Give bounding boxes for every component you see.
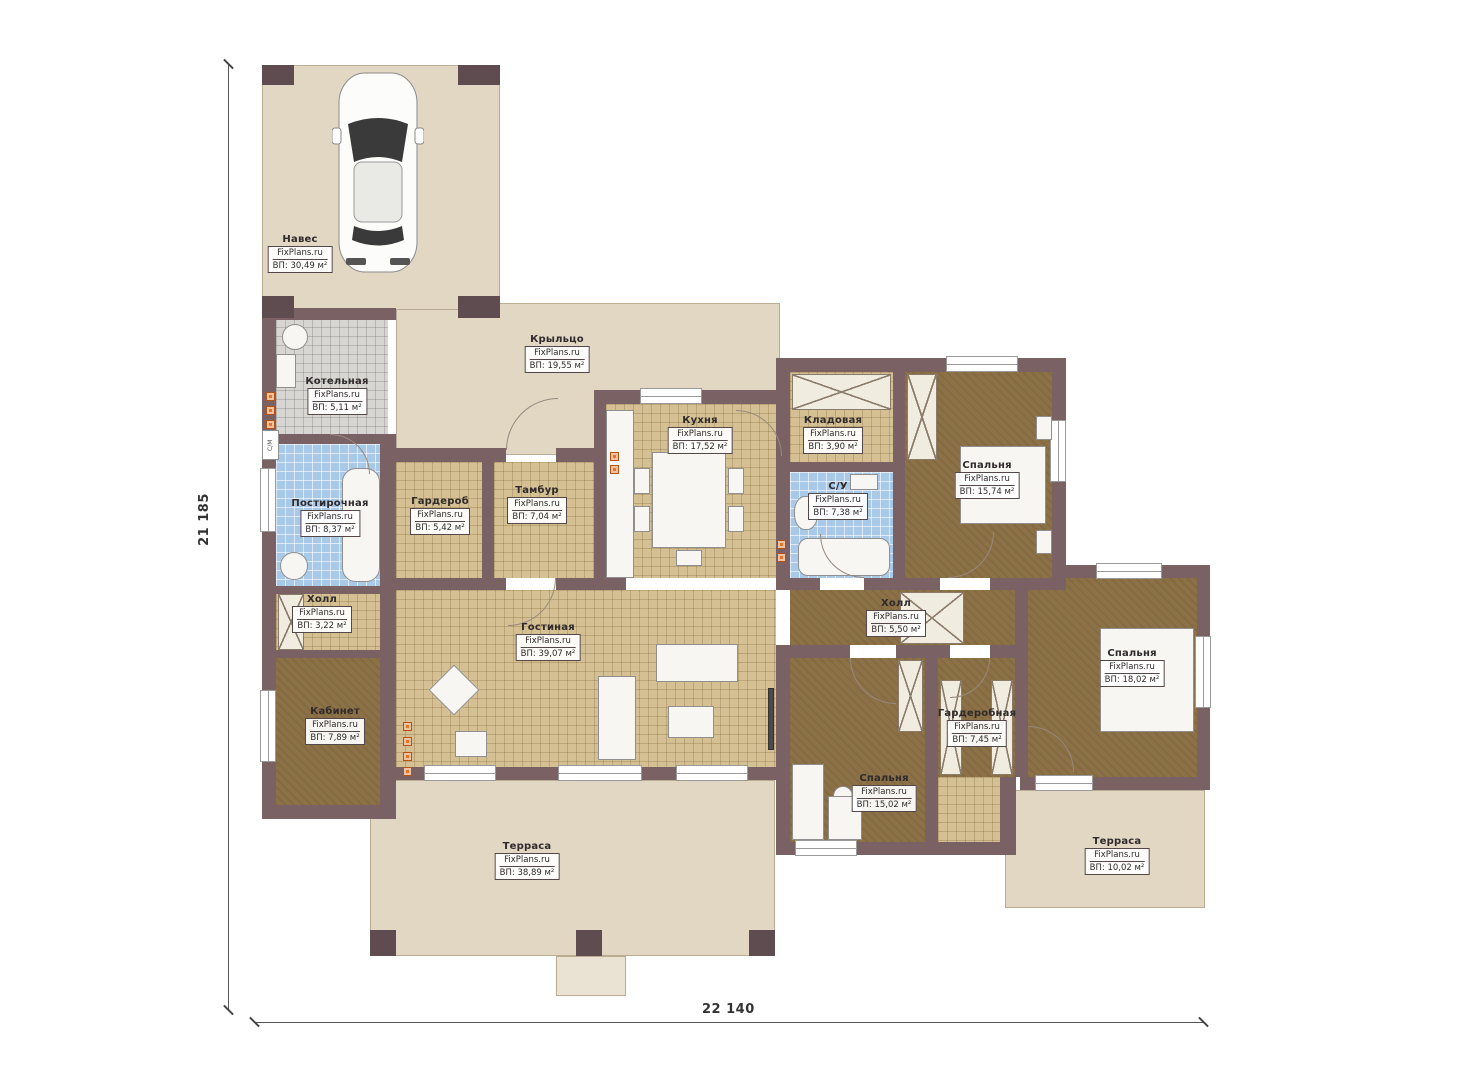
room-label-kotelnaya: КотельнаяFixPlans.ruВП: 5,11 м²	[305, 376, 368, 415]
room-name: Терраса	[1085, 836, 1150, 847]
coffee-table	[668, 706, 714, 738]
chair	[728, 468, 744, 494]
radiator-dot	[266, 420, 275, 429]
room-name: Котельная	[305, 376, 368, 387]
radiator-dot	[777, 540, 786, 549]
room-name: Кладовая	[803, 415, 863, 426]
room-name: Гостиная	[516, 622, 581, 633]
room-name: С/У	[808, 481, 868, 492]
room-info-box: FixPlans.ruВП: 30,49 м²	[268, 246, 333, 273]
watermark-text: FixPlans.ru	[813, 494, 863, 507]
wall-segment	[556, 578, 626, 590]
room-area: ВП: 3,22 м²	[297, 620, 347, 632]
window	[795, 840, 857, 856]
room-area: ВП: 17,52 м²	[673, 441, 728, 453]
wall-segment	[384, 578, 506, 590]
room-info-box: FixPlans.ruВП: 5,50 м²	[866, 610, 926, 637]
window	[424, 765, 496, 781]
wall-segment	[556, 448, 606, 462]
room-info-box: FixPlans.ruВП: 3,22 м²	[292, 606, 352, 633]
room-area: ВП: 19,55 м²	[530, 360, 585, 372]
bed	[792, 764, 824, 840]
room-area: ВП: 15,74 м²	[960, 486, 1015, 498]
room-name: Кухня	[668, 415, 733, 426]
room-name: Холл	[292, 594, 352, 605]
room-info-box: FixPlans.ruВП: 10,02 м²	[1085, 848, 1150, 875]
room-name: Спальня	[955, 460, 1020, 471]
radiator-dot	[266, 392, 275, 401]
wall-segment	[276, 586, 380, 594]
wall-segment	[990, 645, 1016, 658]
room-name: Холл	[866, 598, 926, 609]
washing-machine: С/М	[262, 430, 279, 460]
room-area: ВП: 8,37 м²	[305, 524, 355, 536]
room-name: Спальня	[852, 773, 917, 784]
terrace-post	[370, 930, 396, 956]
radiator-dot	[777, 553, 786, 562]
radiator-dot	[403, 767, 412, 776]
wall-pillar	[458, 296, 500, 318]
room-label-spalnya-3: СпальняFixPlans.ruВП: 15,02 м²	[852, 773, 917, 812]
room-label-naves: НавесFixPlans.ruВП: 30,49 м²	[268, 234, 333, 273]
window	[1050, 420, 1066, 482]
wall-pillar	[262, 65, 294, 85]
watermark-text: FixPlans.ru	[305, 511, 355, 524]
room-info-box: FixPlans.ruВП: 18,02 м²	[1100, 660, 1165, 687]
room-info-box: FixPlans.ruВП: 38,89 м²	[495, 853, 560, 880]
room-info-box: FixPlans.ruВП: 7,38 м²	[808, 493, 868, 520]
room-info-box: FixPlans.ruВП: 17,52 м²	[668, 427, 733, 454]
radiator-dot	[266, 406, 275, 415]
window	[1096, 563, 1162, 579]
watermark-text: FixPlans.ru	[530, 347, 585, 360]
room-info-box: FixPlans.ruВП: 3,90 м²	[803, 427, 863, 454]
watermark-text: FixPlans.ru	[310, 719, 360, 732]
room-label-spalnya-1: СпальняFixPlans.ruВП: 15,74 м²	[955, 460, 1020, 499]
room-info-box: FixPlans.ruВП: 7,89 м²	[305, 718, 365, 745]
wall-pillar	[458, 65, 500, 85]
room-area: ВП: 7,45 м²	[952, 734, 1002, 746]
room-label-terrasa-1: ТеррасаFixPlans.ruВП: 38,89 м²	[495, 841, 560, 880]
room-info-box: FixPlans.ruВП: 15,74 м²	[955, 472, 1020, 499]
floor-plan: С/М 21 185 22 140 НавесFixPlans.ruВП: 30…	[0, 0, 1474, 1080]
room-info-box: FixPlans.ruВП: 7,45 м²	[947, 720, 1007, 747]
wall-segment	[380, 434, 396, 819]
room-area: ВП: 38,89 м²	[500, 867, 555, 879]
room-info-box: FixPlans.ruВП: 39,07 м²	[516, 634, 581, 661]
window	[260, 690, 276, 762]
radiator-dot	[403, 752, 412, 761]
watermark-text: FixPlans.ru	[512, 498, 562, 511]
room-label-terrasa-2: ТеррасаFixPlans.ruВП: 10,02 м²	[1085, 836, 1150, 875]
wall-segment	[776, 358, 1066, 372]
sofa	[598, 676, 636, 760]
wall-segment	[384, 448, 506, 462]
tv	[768, 688, 774, 750]
room-info-box: FixPlans.ruВП: 15,02 м²	[852, 785, 917, 812]
room-name: Спальня	[1100, 648, 1165, 659]
dimension-line-bottom	[254, 1022, 1204, 1023]
radiator-dot	[610, 452, 619, 461]
window	[946, 356, 1018, 372]
window	[676, 765, 748, 781]
room-label-garderob: ГардеробFixPlans.ruВП: 5,42 м²	[410, 496, 470, 535]
room-label-garderobnaya: ГардеробнаяFixPlans.ruВП: 7,45 м²	[938, 708, 1016, 747]
watermark-text: FixPlans.ru	[857, 786, 912, 799]
dimension-line-left	[228, 64, 229, 1010]
boiler	[282, 324, 308, 350]
wall-segment	[864, 578, 940, 590]
window	[640, 388, 702, 404]
window	[1035, 775, 1093, 791]
terrace-post	[749, 930, 775, 956]
room-label-su: С/УFixPlans.ruВП: 7,38 м²	[808, 481, 868, 520]
watermark-text: FixPlans.ru	[415, 509, 465, 522]
watermark-text: FixPlans.ru	[673, 428, 728, 441]
chair	[634, 506, 650, 532]
car-icon	[332, 70, 424, 275]
watermark-text: FixPlans.ru	[297, 607, 347, 620]
room-label-krylco: КрыльцоFixPlans.ruВП: 19,55 м²	[525, 334, 590, 373]
watermark-text: FixPlans.ru	[871, 611, 921, 624]
watermark-text: FixPlans.ru	[312, 389, 362, 402]
room-label-holl-2: ХоллFixPlans.ruВП: 5,50 м²	[866, 598, 926, 637]
watermark-text: FixPlans.ru	[960, 473, 1015, 486]
wall-segment	[1015, 578, 1028, 777]
wall-segment	[896, 645, 950, 658]
closet	[907, 374, 937, 460]
watermark-text: FixPlans.ru	[500, 854, 555, 867]
wall-segment	[1000, 777, 1016, 842]
wall-segment	[276, 434, 380, 444]
watermark-text: FixPlans.ru	[952, 721, 1002, 734]
terrace-post	[576, 930, 602, 956]
room-label-holl-1: ХоллFixPlans.ruВП: 3,22 м²	[292, 594, 352, 633]
room-area: ВП: 7,04 м²	[512, 511, 562, 523]
room-name: Навес	[268, 234, 333, 245]
wall-segment	[790, 462, 893, 472]
side-table	[455, 731, 487, 757]
chair	[634, 468, 650, 494]
room-info-box: FixPlans.ruВП: 7,04 м²	[507, 497, 567, 524]
room-name: Гардероб	[410, 496, 470, 507]
room-area: ВП: 7,38 м²	[813, 507, 863, 519]
wall-segment	[276, 650, 380, 658]
watermark-text: FixPlans.ru	[1090, 849, 1145, 862]
room-area: ВП: 7,89 м²	[310, 732, 360, 744]
terrace-left-floor	[370, 780, 775, 956]
watermark-text: FixPlans.ru	[521, 635, 576, 648]
wall-segment	[925, 658, 938, 842]
room-area: ВП: 5,50 м²	[871, 624, 921, 636]
room-area: ВП: 10,02 м²	[1090, 862, 1145, 874]
room-name: Тамбур	[507, 485, 567, 496]
window	[558, 765, 642, 781]
wall-segment	[790, 645, 850, 658]
room-area: ВП: 39,07 м²	[521, 648, 576, 660]
room-area: ВП: 5,11 м²	[312, 402, 362, 414]
room-label-postirochnaya: ПостирочнаяFixPlans.ruВП: 8,37 м²	[291, 498, 368, 537]
dining-table	[652, 452, 726, 548]
wall-segment	[893, 372, 905, 578]
nightstand	[1036, 530, 1052, 554]
wall-segment	[776, 645, 790, 855]
radiator-dot	[403, 737, 412, 746]
room-info-box: FixPlans.ruВП: 5,11 м²	[307, 388, 367, 415]
room-label-gostinaya: ГостинаяFixPlans.ruВП: 39,07 м²	[516, 622, 581, 661]
wall-segment	[990, 578, 1066, 590]
closet	[898, 660, 923, 732]
room-area: ВП: 3,90 м²	[808, 441, 858, 453]
window	[1195, 636, 1211, 708]
passage-floor	[938, 777, 1000, 842]
dimension-left-label: 21 185	[197, 493, 212, 546]
room-info-box: FixPlans.ruВП: 5,42 м²	[410, 508, 470, 535]
room-area: ВП: 15,02 м²	[857, 799, 912, 811]
room-label-spalnya-2: СпальняFixPlans.ruВП: 18,02 м²	[1100, 648, 1165, 687]
wall-pillar	[262, 296, 294, 318]
terrace-step	[556, 956, 626, 996]
pantry-shelf	[792, 374, 891, 410]
nightstand	[1036, 416, 1052, 440]
room-label-kabinet: КабинетFixPlans.ruВП: 7,89 м²	[305, 706, 365, 745]
radiator-dot	[403, 722, 412, 731]
room-name: Терраса	[495, 841, 560, 852]
room-area: ВП: 5,42 м²	[415, 522, 465, 534]
chair	[676, 550, 702, 566]
room-name: Крыльцо	[525, 334, 590, 345]
dimension-bottom-label: 22 140	[702, 1002, 755, 1017]
room-label-tambur: ТамбурFixPlans.ruВП: 7,04 м²	[507, 485, 567, 524]
window	[260, 468, 276, 532]
watermark-text: FixPlans.ru	[273, 247, 328, 260]
watermark-text: FixPlans.ru	[1105, 661, 1160, 674]
wall-segment	[262, 805, 388, 819]
room-name: Кабинет	[305, 706, 365, 717]
kitchen-counter	[606, 410, 634, 578]
sofa	[656, 644, 738, 682]
wall-segment	[482, 455, 494, 578]
room-info-box: FixPlans.ruВП: 19,55 м²	[525, 346, 590, 373]
room-area: ВП: 30,49 м²	[273, 260, 328, 272]
boiler-unit	[276, 354, 296, 388]
room-label-kladovaya: КладоваяFixPlans.ruВП: 3,90 м²	[803, 415, 863, 454]
room-area: ВП: 18,02 м²	[1105, 674, 1160, 686]
chair	[728, 506, 744, 532]
room-name: Гардеробная	[938, 708, 1016, 719]
radiator-dot	[610, 465, 619, 474]
room-info-box: FixPlans.ruВП: 8,37 м²	[300, 510, 360, 537]
sink	[280, 552, 308, 580]
watermark-text: FixPlans.ru	[808, 428, 858, 441]
room-name: Постирочная	[291, 498, 368, 509]
wall-segment	[594, 390, 606, 578]
room-label-kuhnya: КухняFixPlans.ruВП: 17,52 м²	[668, 415, 733, 454]
